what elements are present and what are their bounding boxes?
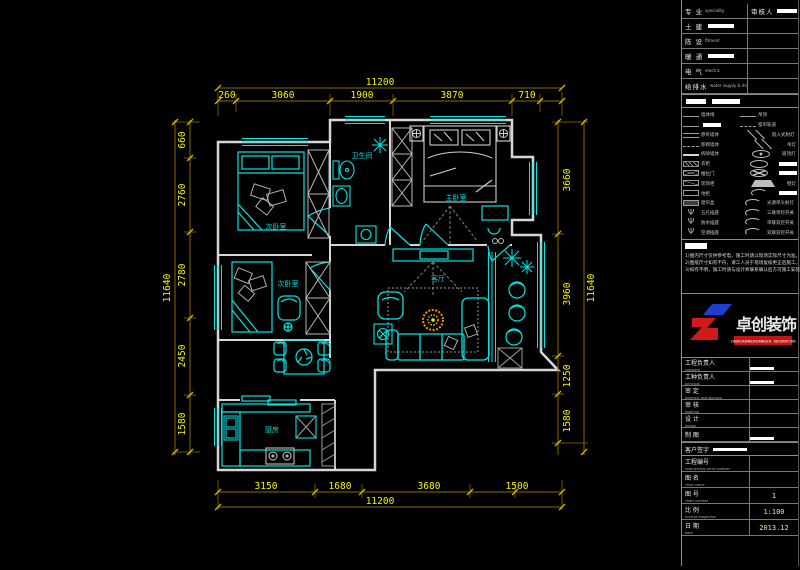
discipline-row: 暖 通	[682, 49, 798, 64]
logo-name: 卓创装饰	[736, 315, 797, 334]
redacted-strip	[682, 95, 798, 108]
document-value: 2013.12	[750, 524, 798, 532]
dim-right-overall: 11640	[586, 273, 597, 302]
legend-label: 窗帘轨道	[758, 121, 776, 127]
legend-symbol-icon	[683, 209, 699, 217]
dim-right-seg1: 3960	[562, 282, 573, 305]
dim-left-seg0: 660	[177, 131, 188, 148]
quilt-bedroom2	[251, 184, 287, 215]
document-en: engineering serial number	[685, 466, 739, 470]
legend-item: 新砌墙体	[683, 139, 740, 149]
dim-right-seg0: 3660	[562, 168, 573, 191]
balcony-chairs	[506, 282, 525, 345]
document-value: 1	[750, 492, 798, 500]
redaction-bar	[712, 99, 740, 104]
bed-master	[410, 126, 510, 202]
customer-signature-label: 客户签字	[685, 445, 709, 454]
legend-item: 墙体线	[683, 110, 740, 120]
legend-symbol-icon	[683, 146, 699, 147]
legend-label: 装饰柜	[701, 180, 715, 186]
discipline-zh: 电 气	[685, 66, 703, 76]
legend-item: 吊顶	[740, 110, 797, 120]
discipline-en: electric	[705, 69, 720, 74]
legend-item	[740, 169, 797, 179]
legend-label: 壁灯	[787, 180, 796, 186]
document-value: 1:100	[750, 508, 798, 516]
chair-bedroom3	[278, 296, 300, 331]
legend-label: 衣柜	[701, 161, 710, 167]
discipline-table: 专 业 speciality 审核人 土 建	[682, 0, 798, 95]
legend-item: 地柜	[683, 188, 740, 198]
legend-label: 原有墙体	[701, 131, 719, 137]
legend-label: 吊灯	[787, 141, 796, 147]
ceiling-light-master	[422, 206, 478, 244]
document-row: 比 例 inverse proportion 1:100	[682, 504, 798, 520]
legend-item: 三联单控开关	[740, 208, 797, 218]
legend-label: 地柜	[701, 190, 710, 196]
legend-label: 推拉门	[701, 170, 715, 176]
legend-item: 单联双控开关	[740, 217, 797, 227]
notes: 1)图内尺寸仅供参考电，施工时请以现场实际尺寸为准。 2)图纸尺寸如有不符，请工…	[682, 240, 798, 294]
signature-row: 制 图	[682, 428, 798, 442]
dim-top-seg3: 3870	[441, 90, 464, 101]
discipline-row: 土 建	[682, 19, 798, 34]
dim-bottom-seg2: 3680	[418, 481, 441, 492]
legend-label: 空调插座	[701, 229, 719, 235]
document-row: 图 号 chart number 1	[682, 488, 798, 504]
redaction-bar	[703, 123, 721, 127]
dim-left-seg3: 2450	[177, 344, 188, 367]
discipline-row: 陈 设 fitment	[682, 34, 798, 49]
legend-item: 推拉门	[683, 169, 740, 179]
dim-right-seg2: 1250	[562, 364, 573, 387]
signature-zh: 工种负责人	[685, 372, 749, 381]
discipline-zh: 给排水	[685, 81, 708, 91]
document-zh: 图 号	[685, 489, 749, 498]
rug-flower	[423, 310, 443, 330]
column-hatch	[322, 348, 522, 466]
wardrobe-bedroom3	[306, 262, 330, 334]
legend-symbol-icon	[683, 170, 699, 176]
legend-symbol-icon	[752, 150, 770, 158]
legend-symbol-icon	[740, 126, 756, 127]
document-en: date	[685, 530, 739, 534]
legend-item: 衣柜	[683, 159, 740, 169]
document-zh: 图 名	[685, 473, 749, 482]
washer	[356, 226, 376, 243]
legend-symbol-icon	[745, 199, 761, 207]
legend-label: 三联单控开关	[767, 209, 794, 215]
legend-symbol-icon	[750, 160, 768, 168]
signature-zh: 设 计	[685, 414, 749, 423]
dining-set	[274, 340, 330, 374]
kitchen-cabinet	[296, 416, 316, 438]
legend-item: 双联双控开关	[740, 227, 797, 237]
legend-label: 新砌墙体	[701, 141, 719, 147]
signature-row: 审 定 examine and approve	[682, 386, 798, 400]
signature-en: auditing	[685, 409, 739, 413]
legend-item	[740, 159, 797, 169]
discipline-en: water supply & drainage	[710, 84, 749, 89]
legend-symbol-icon	[683, 161, 699, 167]
legend-item: 空调插座	[683, 227, 740, 237]
room-label-master: 主卧室	[446, 193, 467, 202]
quilt-bedroom3	[234, 268, 266, 302]
dim-bottom-seg0: 3150	[255, 481, 278, 492]
legend-symbol-icon	[745, 228, 761, 236]
logo-red-shape	[690, 318, 718, 340]
legend-label: 单联双控开关	[767, 219, 794, 225]
document-en: chart name	[685, 482, 739, 486]
redaction-bar	[750, 381, 774, 384]
legend-label: 双联双控开关	[767, 229, 794, 235]
dim-left-seg2: 2780	[177, 263, 188, 286]
legend-item: 防水插座	[683, 217, 740, 227]
legend-item	[683, 120, 740, 130]
legend-symbol-icon	[740, 116, 756, 117]
floor-plan-sheet: 11200 260 3060 1900 3870 710 11200 3150 …	[0, 0, 680, 566]
document-zh: 比 例	[685, 505, 749, 514]
logo-subtitle: ZHUOCHUANGZHUANGSHI DECORATION	[731, 340, 796, 344]
note-line: 3)如有不明，施工时请与设计师联系确认后方可施工安装。	[685, 267, 786, 273]
dim-bottom-seg1: 1680	[329, 481, 352, 492]
legend-symbol-icon	[745, 209, 761, 217]
discipline-row: 电 气 electric	[682, 64, 798, 79]
room-label-kitchen: 厨房	[265, 425, 279, 434]
signature-zh: 审 核	[685, 400, 749, 409]
signature-en: compere	[685, 367, 739, 371]
legend-symbol-icon	[683, 126, 699, 127]
legend: 墙体线 原有墙体 新砌墙体	[682, 108, 798, 240]
legend-label: 防水插座	[701, 219, 719, 225]
redaction-bar	[686, 99, 706, 104]
legend-label: 拆除墙体	[701, 151, 719, 157]
legend-item: 窗帘盒	[683, 198, 740, 208]
legend-symbol-icon	[683, 116, 699, 117]
legend-label: 吊顶	[758, 112, 767, 118]
legend-symbol-icon	[683, 200, 699, 206]
legend-symbol-icon	[751, 180, 775, 187]
legend-symbol-icon	[755, 139, 773, 149]
legend-symbol-icon	[683, 180, 699, 186]
wardrobe-master	[392, 128, 412, 206]
document-en: chart number	[685, 498, 739, 502]
document-zh: 工程编号	[685, 457, 749, 466]
legend-symbol-icon	[683, 190, 699, 196]
entry-markers	[493, 239, 504, 244]
redaction-bar	[713, 448, 747, 451]
document-en: inverse proportion	[685, 514, 739, 518]
discipline-en: fitment	[705, 39, 720, 44]
room-label-bathroom: 卫生间	[352, 151, 373, 160]
discipline-zh: 专 业	[685, 6, 703, 16]
balcony-plants	[503, 249, 534, 274]
title-block: 专 业 speciality 审核人 土 建	[681, 0, 799, 566]
redaction-bar	[779, 162, 797, 166]
redaction-bar	[777, 9, 797, 13]
discipline-zh: 暖 通	[685, 51, 703, 61]
note-line: 1)图内尺寸仅供参考电，施工时请以现场实际尺寸为准。	[685, 253, 786, 259]
legend-left-column: 墙体线 原有墙体 新砌墙体	[683, 110, 740, 237]
redaction-bar	[779, 171, 797, 175]
legend-symbol-icon	[747, 130, 765, 140]
dim-left-seg1: 2760	[177, 183, 188, 206]
legend-label: 五孔插座	[701, 209, 719, 215]
document-row: 日 期 date 2013.12	[682, 520, 798, 536]
auditor-label: 审核人	[751, 6, 774, 16]
signature-zh: 制 图	[685, 430, 749, 439]
legend-label: 光源单头射灯	[767, 200, 794, 206]
bed-bedroom2	[238, 152, 304, 230]
discipline-row: 给排水 water supply & drainage	[682, 79, 798, 94]
side-table-lamp	[374, 324, 392, 344]
dim-left-seg4: 1580	[177, 412, 188, 435]
note-line: 2)图纸尺寸如有不符，请工人员于现场复核更正后施工。	[685, 260, 786, 266]
redaction-bar	[750, 437, 774, 440]
signature-zh: 工程负责人	[685, 358, 749, 367]
document-row: 工程编号 engineering serial number	[682, 456, 798, 472]
signature-row: 工种负责人 principal	[682, 372, 798, 386]
dim-top-seg0: 260	[218, 90, 235, 101]
sofa	[378, 292, 489, 360]
discipline-en: speciality	[705, 9, 724, 14]
room-label-bedroom3: 次卧室	[278, 279, 299, 288]
company-logo: 卓创装饰 ZHUOCHUANGZHUANGSHI DECORATION	[682, 294, 798, 358]
dim-top-seg1: 3060	[272, 90, 295, 101]
document-table: 工程编号 engineering serial number 图 名 chart…	[682, 456, 798, 536]
redaction-bar	[779, 191, 797, 195]
legend-symbol-icon	[683, 218, 699, 226]
dim-bottom-overall: 11200	[366, 496, 395, 507]
plant-bathroom	[372, 137, 388, 153]
legend-item: 壁灯	[740, 178, 797, 188]
legend-item: 嵌入式射灯	[740, 130, 797, 140]
cad-screenshot: { "plan": { "rooms": { "bedroom2": "次卧室"…	[0, 0, 800, 566]
discipline-row: 专 业 speciality 审核人	[682, 4, 798, 19]
dim-bottom-seg3: 1500	[506, 481, 529, 492]
signature-row: 审 核 auditing	[682, 400, 798, 414]
redaction-bar	[708, 24, 734, 28]
desk-master	[482, 206, 508, 234]
dim-right-seg3: 1580	[562, 409, 573, 432]
legend-item: 窗帘轨道	[740, 120, 797, 130]
legend-symbol-icon	[750, 169, 768, 177]
legend-symbol-icon	[683, 228, 699, 236]
signature-en: principal	[685, 381, 739, 385]
signature-en: examine and approve	[685, 395, 739, 399]
legend-label: 墙体线	[701, 112, 715, 118]
legend-label: 嵌入式射灯	[772, 131, 795, 137]
legend-label: 窗帘盒	[701, 200, 715, 206]
tv-cabinet	[393, 249, 473, 261]
customer-signature-row: 客户签字	[682, 443, 798, 456]
signature-table: 工程负责人 compere 工种负责人 principal 审 定 examin…	[682, 358, 798, 443]
discipline-zh: 土 建	[685, 21, 703, 31]
legend-item: 吸顶灯	[740, 149, 797, 159]
room-label-living: 客厅	[431, 274, 445, 283]
legend-item: 光源单头射灯	[740, 198, 797, 208]
legend-right-column: 吊顶 窗帘轨道 嵌入式射灯 吊灯	[740, 110, 797, 237]
legend-label: 吸顶灯	[782, 151, 796, 157]
room-label-bedroom2: 次卧室	[266, 222, 287, 231]
dim-top-seg4: 710	[518, 90, 535, 101]
legend-item: 吊灯	[740, 139, 797, 149]
signature-zh: 审 定	[685, 386, 749, 395]
legend-item: 装饰柜	[683, 178, 740, 188]
dim-top-seg2: 1900	[351, 90, 374, 101]
redaction-bar	[708, 54, 734, 58]
nightstand-lamps	[413, 130, 508, 138]
signature-en: design	[685, 423, 739, 427]
floor-plan-svg: 11200 260 3060 1900 3870 710 11200 3150 …	[0, 0, 680, 566]
legend-item: 拆除墙体	[683, 149, 740, 159]
legend-symbol-icon	[683, 154, 699, 156]
toilet	[333, 161, 354, 179]
legend-item: 原有墙体	[683, 130, 740, 140]
sofa-pillows	[444, 325, 477, 350]
washbasin	[333, 186, 350, 206]
legend-symbol-icon	[745, 218, 761, 226]
discipline-zh: 陈 设	[685, 36, 703, 46]
legend-symbol-icon	[751, 189, 767, 197]
legend-symbol-icon	[683, 133, 699, 138]
document-row: 图 名 chart name	[682, 472, 798, 488]
dim-top-overall: 11200	[366, 77, 395, 88]
logo-blue-shape	[703, 304, 732, 315]
kitchen-sink	[224, 416, 238, 440]
legend-item	[740, 188, 797, 198]
legend-item: 五孔插座	[683, 208, 740, 218]
redaction-bar	[685, 243, 707, 249]
document-zh: 日 期	[685, 521, 749, 530]
dim-left-overall: 11640	[162, 273, 173, 302]
